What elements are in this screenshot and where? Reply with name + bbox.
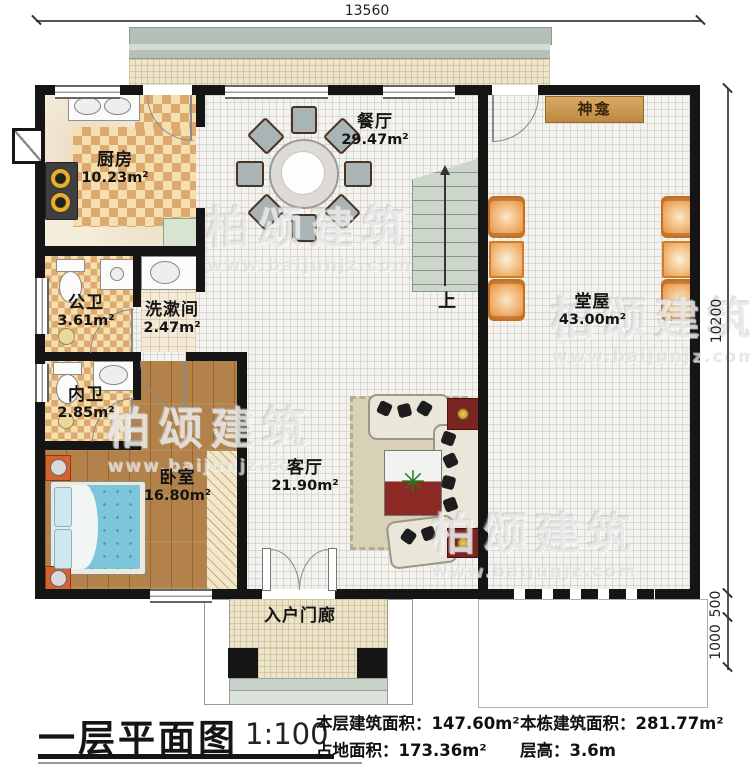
info-column-right: 本栋建筑面积：281.77m² 层高：3.6m [520, 710, 724, 764]
stove-burner [50, 168, 71, 189]
staircase [412, 158, 480, 292]
window [383, 85, 455, 99]
sink-basin [74, 97, 101, 115]
wall-bottom [35, 589, 262, 599]
wall-private-bath-bottom [35, 441, 141, 450]
dining-chair [344, 161, 372, 187]
bedroom-name: 卧室 [130, 468, 225, 488]
wall-hall-opening [497, 589, 655, 599]
floor-area-label: 本层建筑面积： [316, 714, 432, 733]
sink-basin [104, 97, 131, 115]
bed-pillow [54, 529, 72, 569]
entry-door-leaf [328, 548, 337, 591]
kitchen-name: 厨房 [70, 150, 160, 170]
room-label-dining: 餐厅 29.47m² [330, 112, 420, 149]
private-bath-name: 内卫 [50, 385, 122, 405]
floor-height-label: 层高： [520, 741, 570, 760]
title-underline [38, 754, 334, 759]
washroom-area: 2.47m² [130, 320, 214, 337]
land-area-label: 占地面积： [316, 741, 399, 760]
door-opening [492, 85, 538, 95]
hall-side-table [489, 241, 524, 278]
cabinet-ornament [457, 537, 469, 549]
porch-column-base [204, 599, 230, 705]
dining-table-top [281, 151, 325, 195]
window [35, 278, 49, 334]
room-label-washroom: 洗漱间 2.47m² [130, 300, 214, 337]
porch-name: 入户门廊 [245, 606, 355, 626]
dining-area: 29.47m² [330, 132, 420, 149]
room-label-porch: 入户门廊 [245, 606, 355, 626]
terrace-outline [478, 599, 708, 708]
room-label-hall: 堂屋 43.00m² [545, 292, 640, 329]
public-bath-name: 公卫 [50, 293, 122, 313]
stair-arrow-icon [440, 165, 450, 175]
info-row: 占地面积：173.36m² [316, 737, 520, 764]
info-row: 层高：3.6m [520, 737, 724, 764]
cabinet-ornament [457, 408, 469, 420]
hall-chair [488, 279, 525, 321]
dining-chair [291, 106, 317, 134]
dimension-right-porch: 1000 [708, 622, 724, 662]
private-bath-area: 2.85m² [50, 405, 122, 422]
chimney-flue [12, 128, 44, 164]
hall-chair [488, 196, 525, 238]
wall-bottom [335, 589, 497, 599]
public-bath-area: 3.61m² [50, 313, 122, 330]
floor-plan: 上 神龛 [0, 0, 750, 774]
porch-pillar [228, 648, 258, 678]
shrine-label: 神龛 [577, 100, 611, 118]
washbasin [150, 261, 180, 284]
info-column-left: 本层建筑面积：147.60m² 占地面积：173.36m² [316, 710, 520, 764]
floor-area-value: 147.60m² [432, 714, 520, 733]
room-label-bedroom: 卧室 16.80m² [130, 468, 225, 505]
porch-column-base [387, 599, 413, 705]
wall-private-bath [133, 352, 141, 400]
porch-step [228, 690, 389, 705]
window [55, 85, 120, 99]
door-opening [143, 85, 192, 95]
room-label-public-bath: 公卫 3.61m² [50, 293, 122, 330]
living-name: 客厅 [255, 458, 355, 478]
hall-area: 43.00m² [545, 312, 640, 329]
plant-icon: ✳ [400, 465, 425, 500]
porch-pillar [357, 648, 387, 678]
title-underline-thin [38, 762, 362, 764]
dimension-top-value: 13560 [322, 3, 412, 19]
wall-bedroom-right [237, 352, 247, 599]
floor-drain [58, 328, 75, 345]
wall-right [690, 85, 700, 599]
dimension-line-right [727, 88, 729, 670]
door-leaf [190, 95, 192, 140]
shrine-cabinet: 神龛 [545, 96, 644, 123]
porch-floor [258, 648, 357, 678]
door-leaf [131, 398, 133, 441]
washroom-name: 洗漱间 [130, 300, 214, 320]
terrace-band [129, 50, 550, 59]
window [225, 85, 328, 99]
shower-drain [110, 267, 124, 281]
building-area-label: 本栋建筑面积： [520, 714, 636, 733]
stair-up-label: 上 [438, 287, 456, 313]
room-label-private-bath: 内卫 2.85m² [50, 385, 122, 422]
hall-name: 堂屋 [545, 292, 640, 312]
building-area-value: 281.77m² [636, 714, 724, 733]
dining-name: 餐厅 [330, 112, 420, 132]
wall-bottom [655, 589, 700, 599]
wall-living-hall [478, 95, 488, 599]
info-row: 本层建筑面积：147.60m² [316, 710, 520, 737]
room-label-living: 客厅 21.90m² [255, 458, 355, 495]
kitchen-area: 10.23m² [70, 170, 160, 187]
info-row: 本栋建筑面积：281.77m² [520, 710, 724, 737]
dining-chair [236, 161, 264, 187]
floor-height-value: 3.6m [570, 741, 616, 760]
door-leaf [184, 361, 186, 409]
bedside-lamp [50, 570, 67, 587]
terrace-tile [129, 59, 550, 85]
living-area: 21.90m² [255, 478, 355, 495]
coffee-table: ✳ [384, 450, 442, 516]
bedside-lamp [50, 459, 67, 476]
bed-pillow [54, 487, 72, 527]
bedroom-area: 16.80m² [130, 488, 225, 505]
dimension-right-step: 500 [708, 584, 724, 624]
terrace-band [129, 27, 552, 45]
dimension-right-main: 10200 [709, 296, 725, 346]
dimension-line-top [36, 20, 701, 22]
window [35, 364, 49, 402]
door-leaf [492, 95, 494, 141]
wall-kitchen [196, 95, 205, 127]
window [150, 589, 212, 603]
washbasin [99, 365, 128, 385]
stair-direction-line [444, 174, 446, 286]
wall-bath-bottom [35, 352, 140, 361]
dining-chair [291, 214, 317, 242]
wall-washroom [196, 246, 205, 292]
land-area-value: 173.36m² [399, 741, 487, 760]
wall-kitchen-bottom [35, 246, 205, 256]
room-label-kitchen: 厨房 10.23m² [70, 150, 160, 187]
wall-top [35, 85, 700, 95]
stove-burner [50, 192, 71, 213]
